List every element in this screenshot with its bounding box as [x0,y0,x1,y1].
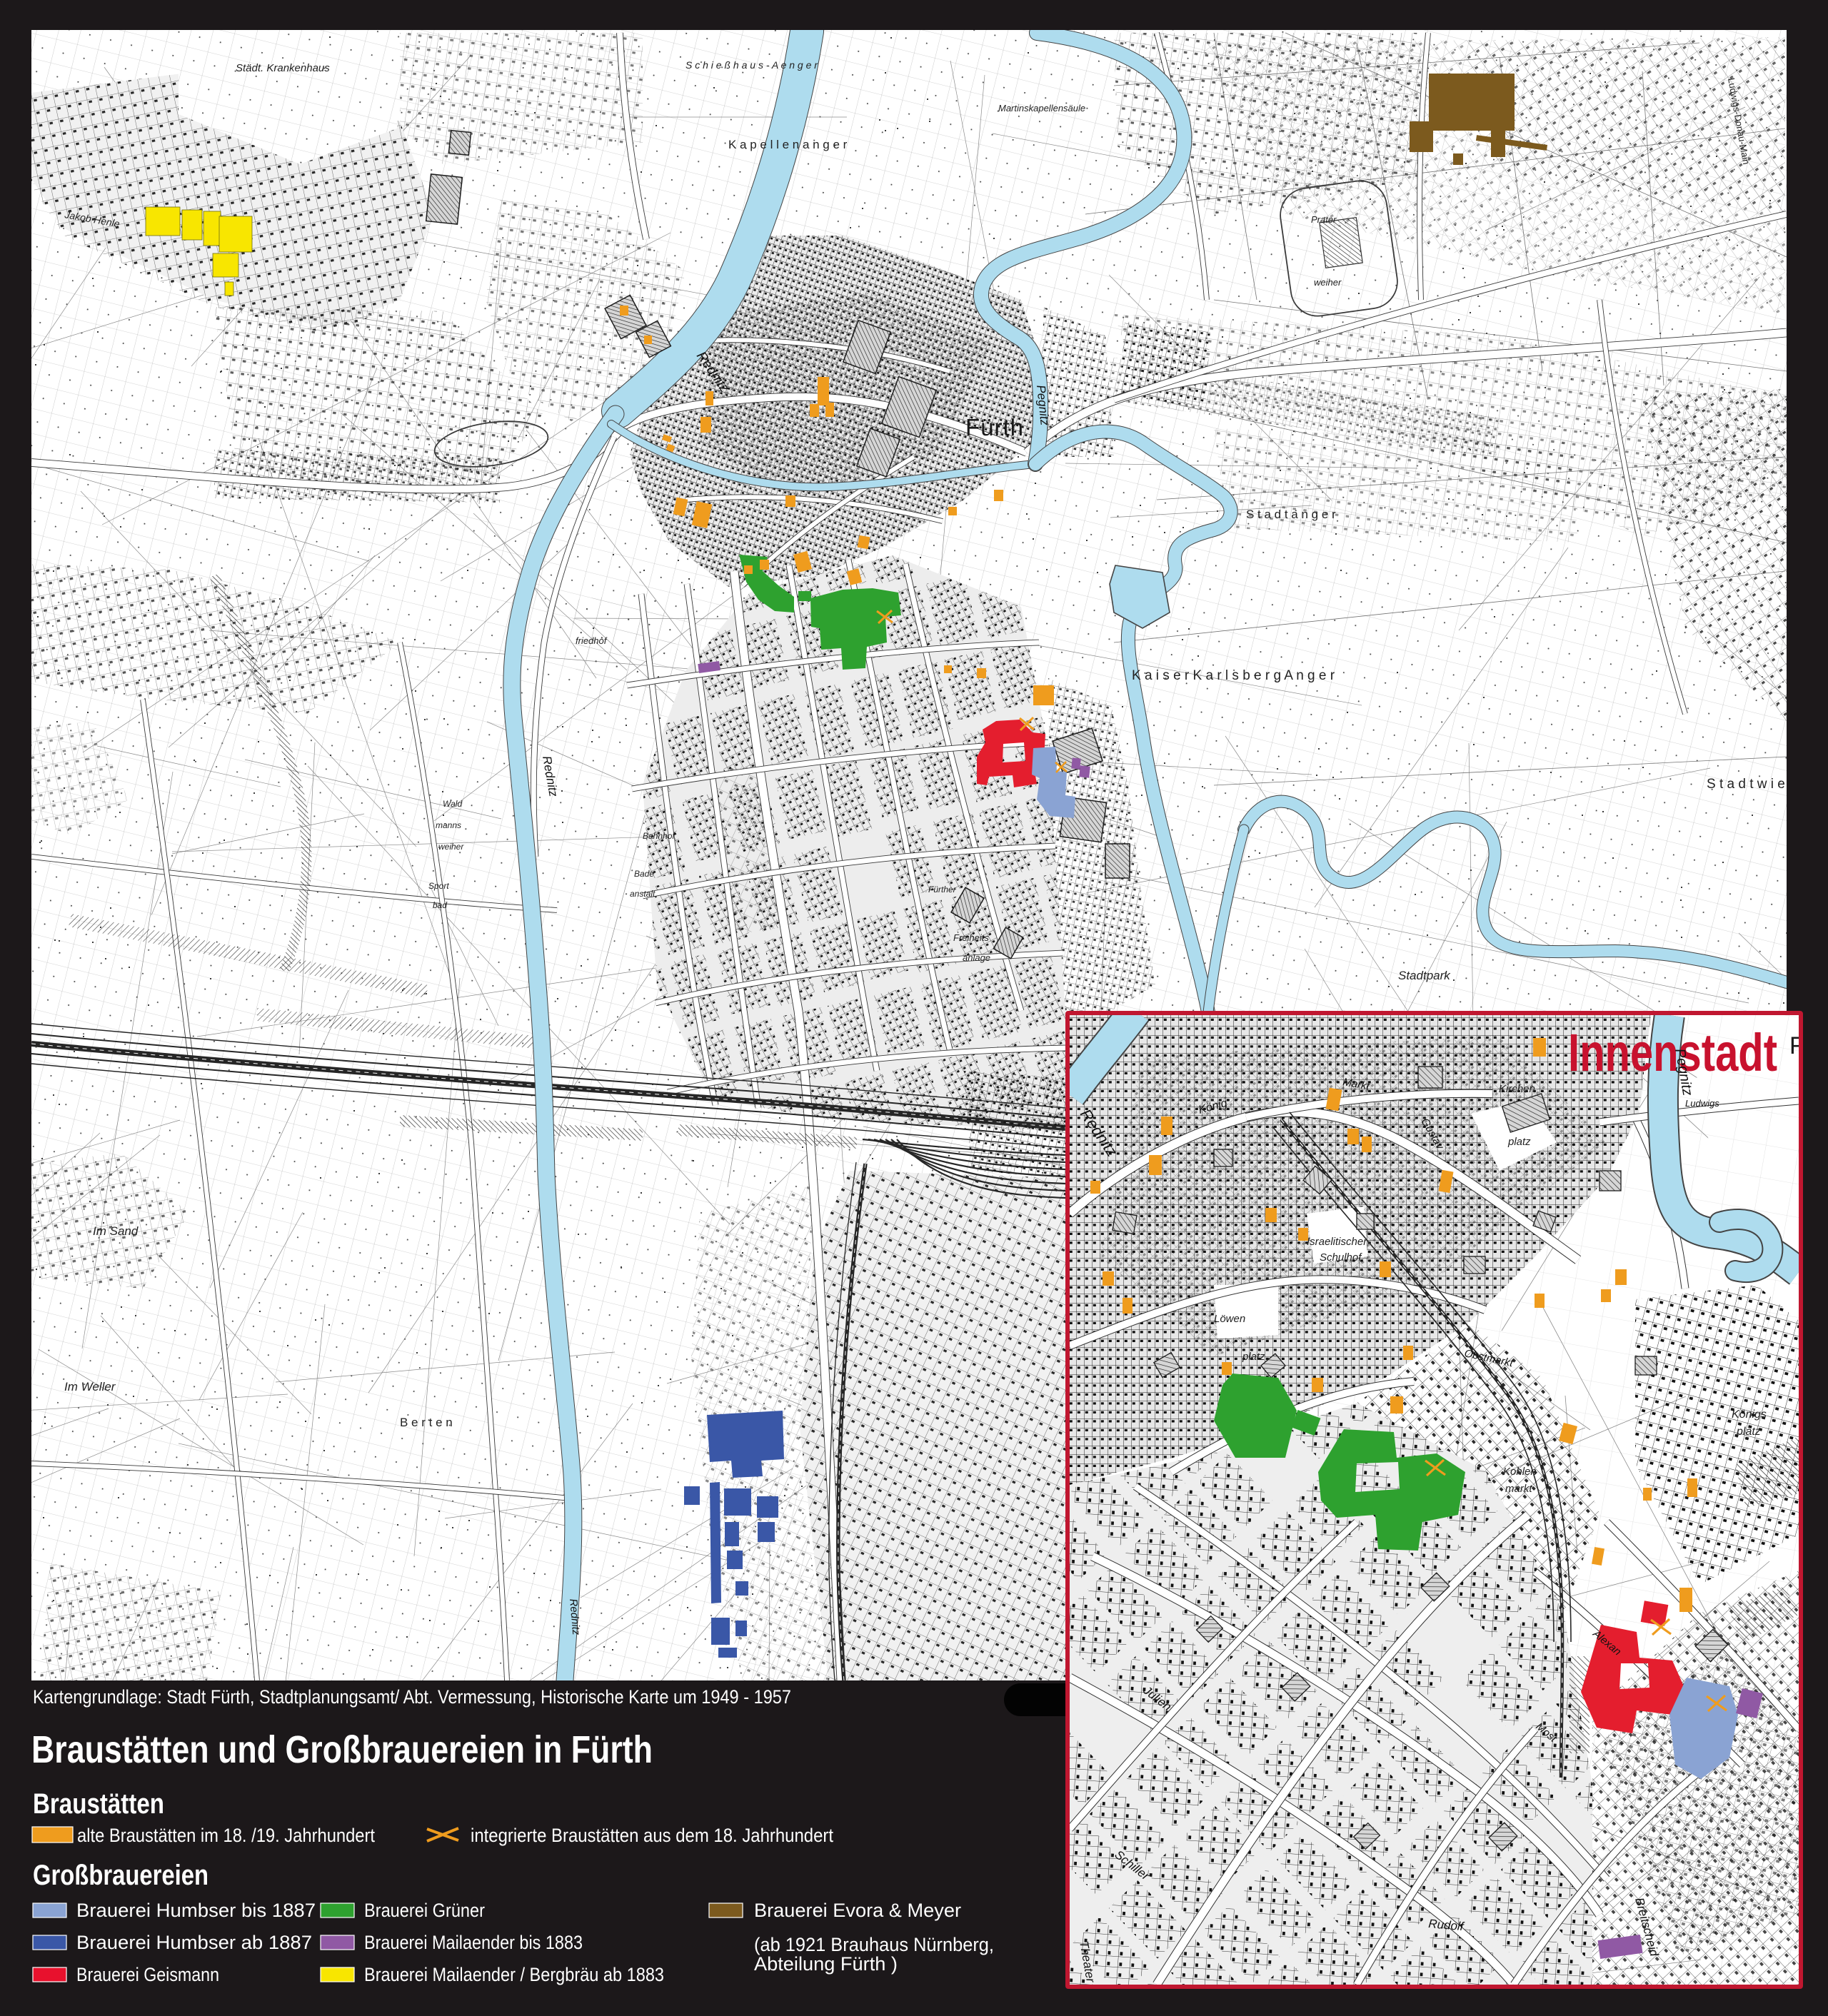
svg-text:Abteilung Fürth ): Abteilung Fürth ) [754,1953,898,1975]
svg-text:Brauerei Geismann: Brauerei Geismann [76,1964,219,1985]
svg-text:Brauerei Evora & Meyer: Brauerei Evora & Meyer [754,1900,961,1921]
svg-text:(ab 1921 Brauhaus Nürnberg,: (ab 1921 Brauhaus Nürnberg, [754,1934,994,1955]
svg-text:Braustätten und Großbrauereien: Braustätten und Großbrauereien in Fürth [31,1728,653,1771]
svg-text:Brauerei Mailaender bis 1883: Brauerei Mailaender bis 1883 [364,1932,583,1953]
svg-text:Kartengrundlage: Stadt Fürth,: Kartengrundlage: Stadt Fürth, Stadtplanu… [33,1686,791,1708]
svg-text:Großbrauereien: Großbrauereien [33,1860,209,1891]
svg-text:alte Braustätten im 18. /19. J: alte Braustätten im 18. /19. Jahrhundert [77,1825,375,1846]
svg-text:Brauerei Humbser ab 1887: Brauerei Humbser ab 1887 [76,1932,312,1953]
svg-text:Brauerei Humbser bis 1887: Brauerei Humbser bis 1887 [76,1900,316,1921]
svg-text:Braustätten: Braustätten [33,1788,164,1820]
svg-text:Brauerei Mailaender / Bergbräu: Brauerei Mailaender / Bergbräu ab 1883 [364,1964,664,1985]
svg-text:integrierte Braustätten aus de: integrierte Braustätten aus dem 18. Jahr… [471,1825,833,1846]
svg-text:Brauerei Grüner: Brauerei Grüner [364,1900,485,1921]
